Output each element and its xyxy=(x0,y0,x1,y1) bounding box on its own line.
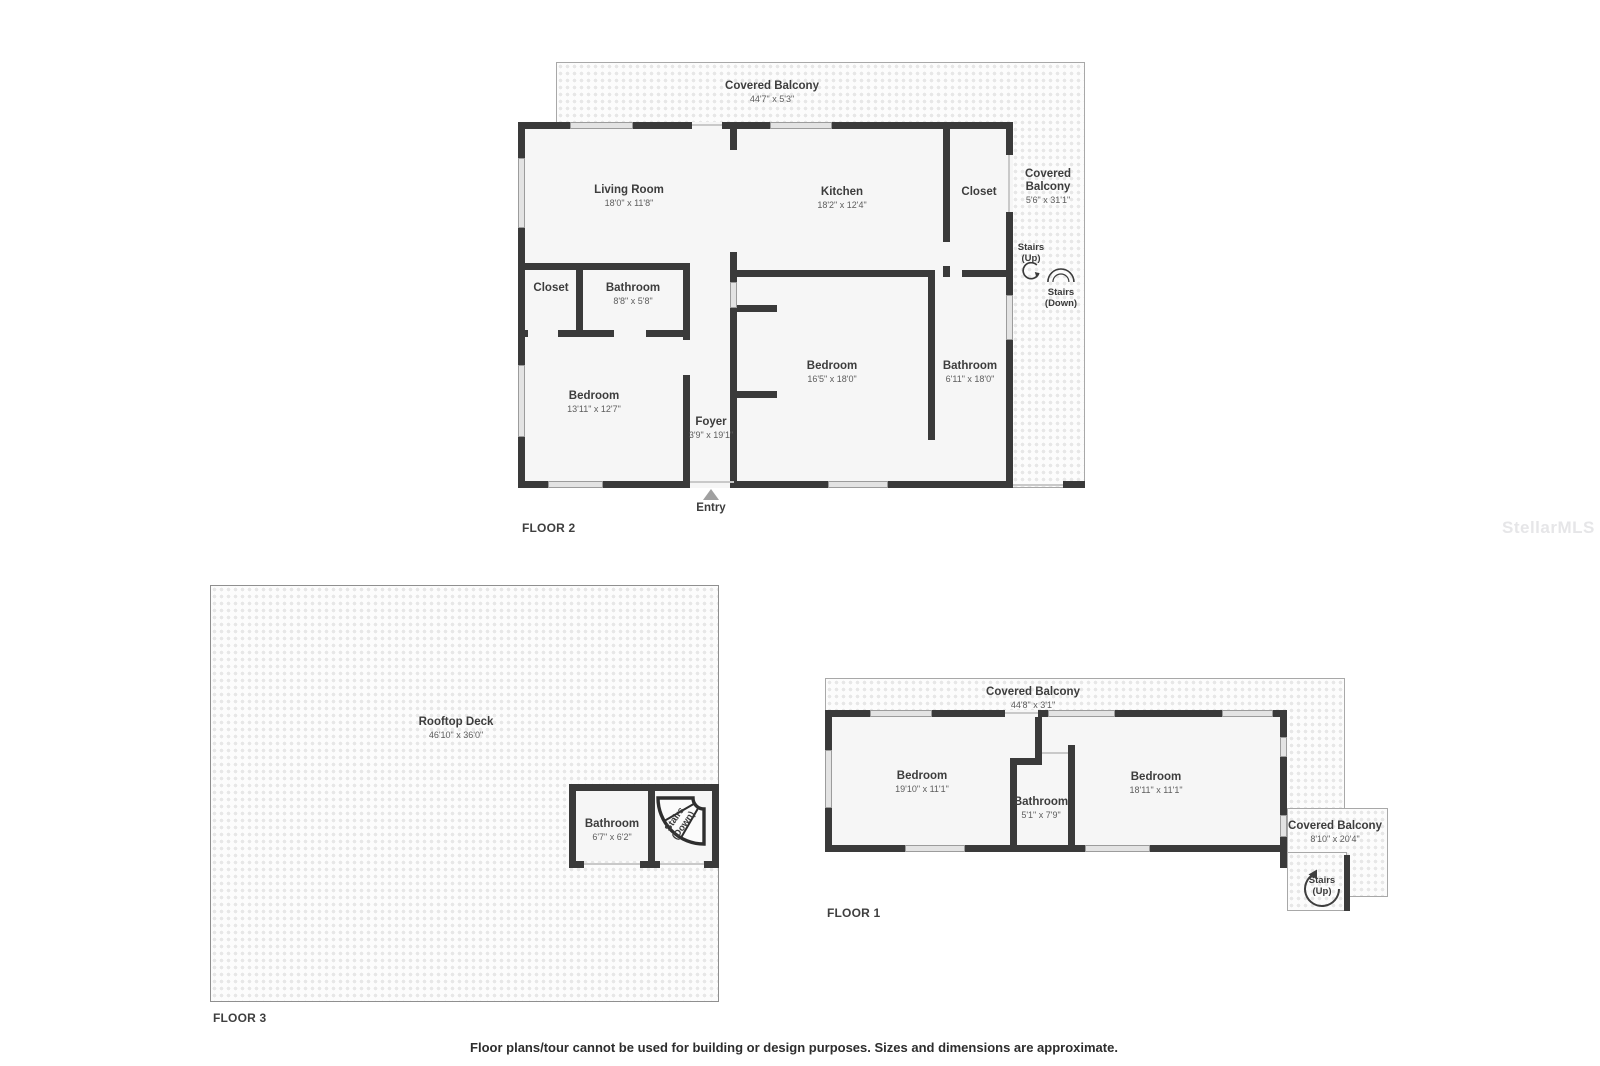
floor1-plan: Stairs (Up) Covered Balcony 44'8" x 3'1"… xyxy=(825,678,1391,930)
label-f2-bedroom-main: Bedroom 16'5" x 18'0" xyxy=(807,360,857,385)
room-name: Bedroom xyxy=(807,360,857,373)
label-f1-bedroom-right: Bedroom 18'11" x 11'1" xyxy=(1129,771,1182,796)
label-f2-covered-balcony-right: Covered Balcony 5'6" x 31'1" xyxy=(1025,168,1071,206)
room-dims: 8'10" x 20'4" xyxy=(1288,834,1382,845)
wall-segment xyxy=(576,263,583,337)
label-f2-covered-balcony-top: Covered Balcony 44'7" x 5'3" xyxy=(725,80,819,105)
wall-segment xyxy=(648,791,655,868)
wall-segment xyxy=(518,481,690,488)
window xyxy=(1006,295,1013,340)
wall-segment xyxy=(730,252,737,282)
label-f2-bathroom-small: Bathroom 8'8" x 5'8" xyxy=(606,282,660,307)
wall-segment xyxy=(737,391,777,398)
room-name: Foyer xyxy=(689,416,733,429)
room-dims: 5'1" x 7'9" xyxy=(1014,810,1068,821)
wall-segment xyxy=(722,122,1013,129)
room-name: Bedroom xyxy=(1129,771,1182,784)
room-dims: 46'10" x 36'0" xyxy=(419,730,494,741)
wall-segment xyxy=(825,845,1287,852)
wall-segment xyxy=(962,270,1013,277)
wall-segment xyxy=(1344,855,1350,911)
stellar-mls-watermark: StellarMLS xyxy=(1502,518,1595,538)
label-f2-kitchen: Kitchen 18'2" x 12'4" xyxy=(817,186,866,211)
floor3-plan: Stairs (Down) Rooftop Deck 46'10" x 36'0… xyxy=(210,585,722,1030)
wall-segment xyxy=(928,277,935,440)
wall-segment xyxy=(943,266,950,277)
door-threshold xyxy=(1042,752,1068,754)
label-f1-stairs-up: Stairs (Up) xyxy=(1309,876,1335,898)
window xyxy=(518,158,525,228)
label-f2-stairs-up: Stairs (Up) xyxy=(1018,243,1044,287)
wall-segment xyxy=(1280,852,1287,868)
room-dims: 3'9" x 19'1" xyxy=(689,430,733,441)
label-f2-closet-left: Closet xyxy=(533,282,568,295)
wall-segment xyxy=(518,263,690,270)
room-name: Kitchen xyxy=(817,186,866,199)
stairs-text: (Up) xyxy=(1309,887,1335,898)
window xyxy=(828,481,888,488)
room-name: Covered Balcony xyxy=(986,686,1080,699)
door-threshold xyxy=(584,863,640,865)
label-f2-foyer: Foyer 3'9" x 19'1" xyxy=(689,416,733,441)
window xyxy=(770,122,832,129)
entry-text: Entry xyxy=(696,502,725,515)
wall-segment xyxy=(1063,481,1085,488)
room-name: Balcony xyxy=(1025,181,1071,194)
room-dims: 8'8" x 5'8" xyxy=(606,296,660,307)
wall-segment xyxy=(730,308,737,488)
room-name: Covered xyxy=(1025,168,1071,181)
window xyxy=(1222,710,1273,717)
window xyxy=(905,845,965,852)
wall-segment xyxy=(569,861,584,868)
label-f2-stairs-down: Stairs (Down) xyxy=(1045,268,1077,310)
wall-segment xyxy=(943,129,950,242)
room-dims: 13'11" x 12'7" xyxy=(567,404,621,415)
room-name: Bedroom xyxy=(567,390,621,403)
wall-segment xyxy=(704,861,719,868)
room-dims: 6'11" x 18'0" xyxy=(943,374,997,385)
floorplan-canvas: Covered Balcony 44'7" x 5'3" Living Room… xyxy=(0,0,1600,1066)
window xyxy=(548,481,603,488)
wall-segment xyxy=(518,330,528,337)
wall-segment xyxy=(730,122,737,150)
stairs-text: (Down) xyxy=(1045,299,1077,310)
room-name: Rooftop Deck xyxy=(419,716,494,729)
window xyxy=(1085,845,1150,852)
floor2-tag: FLOOR 2 xyxy=(522,521,575,535)
room-name: Bathroom xyxy=(943,360,997,373)
door-threshold xyxy=(660,863,704,865)
wall-segment xyxy=(683,263,690,340)
window xyxy=(825,750,832,808)
room-dims: 18'0" x 11'8" xyxy=(594,198,664,209)
window xyxy=(1048,710,1115,717)
window xyxy=(1280,815,1287,837)
door-threshold xyxy=(1008,155,1010,212)
room-dims: 6'7" x 6'2" xyxy=(585,832,639,843)
room-dims: 16'5" x 18'0" xyxy=(807,374,857,385)
wall-segment xyxy=(569,784,576,868)
window xyxy=(518,365,525,437)
room-name: Bedroom xyxy=(895,770,949,783)
wall-segment xyxy=(1068,745,1075,845)
label-f3-rooftop-deck: Rooftop Deck 46'10" x 36'0" xyxy=(419,716,494,741)
room-name: Bathroom xyxy=(585,818,639,831)
label-f2-entry: Entry xyxy=(696,502,725,515)
wall-segment xyxy=(712,784,719,868)
label-f2-living-room: Living Room 18'0" x 11'8" xyxy=(594,184,664,209)
label-f2-bedroom-left: Bedroom 13'11" x 12'7" xyxy=(567,390,621,415)
room-dims: 18'11" x 11'1" xyxy=(1129,785,1182,796)
stairs-down-icon xyxy=(1045,268,1077,283)
entry-arrow-icon xyxy=(703,489,719,500)
label-f1-covered-balcony-right: Covered Balcony 8'10" x 20'4" xyxy=(1288,820,1382,845)
room-dims: 19'10" x 11'1" xyxy=(895,784,949,795)
room-dims: 44'7" x 5'3" xyxy=(725,94,819,105)
window xyxy=(570,122,633,129)
wall-segment xyxy=(1006,212,1013,488)
wall-segment xyxy=(640,861,660,868)
floor1-tag: FLOOR 1 xyxy=(827,906,880,920)
room-name: Covered Balcony xyxy=(1288,820,1382,833)
label-f2-closet-top: Closet xyxy=(961,186,996,199)
floor3-tag: FLOOR 3 xyxy=(213,1011,266,1025)
wall-segment xyxy=(737,270,935,277)
wall-segment xyxy=(1006,122,1013,155)
door-threshold xyxy=(692,124,722,126)
room-dims: 18'2" x 12'4" xyxy=(817,200,866,211)
room-name: Living Room xyxy=(594,184,664,197)
room-name: Closet xyxy=(961,186,996,199)
room-dims: 5'6" x 31'1" xyxy=(1025,195,1071,206)
window xyxy=(730,282,737,308)
door-threshold xyxy=(690,481,734,483)
door-threshold xyxy=(1005,712,1038,714)
window xyxy=(870,710,932,717)
door-threshold xyxy=(1013,484,1063,486)
room-name: Closet xyxy=(533,282,568,295)
disclaimer-text: Floor plans/tour cannot be used for buil… xyxy=(0,1040,1588,1055)
room-name: Bathroom xyxy=(1014,796,1068,809)
room-dims: 44'8" x 3'1" xyxy=(986,700,1080,711)
room-name: Covered Balcony xyxy=(725,80,819,93)
floor2-plan: Covered Balcony 44'7" x 5'3" Living Room… xyxy=(518,60,1088,542)
stairs-up-icon xyxy=(1019,262,1043,282)
label-f1-covered-balcony-top: Covered Balcony 44'8" x 3'1" xyxy=(986,686,1080,711)
window xyxy=(1280,737,1287,757)
label-f1-bathroom: Bathroom 5'1" x 7'9" xyxy=(1014,796,1068,821)
label-f1-bedroom-left: Bedroom 19'10" x 11'1" xyxy=(895,770,949,795)
wall-segment xyxy=(558,330,614,337)
label-f3-bathroom: Bathroom 6'7" x 6'2" xyxy=(585,818,639,843)
label-f2-bathroom-main: Bathroom 6'11" x 18'0" xyxy=(943,360,997,385)
wall-segment xyxy=(737,305,777,312)
room-name: Bathroom xyxy=(606,282,660,295)
